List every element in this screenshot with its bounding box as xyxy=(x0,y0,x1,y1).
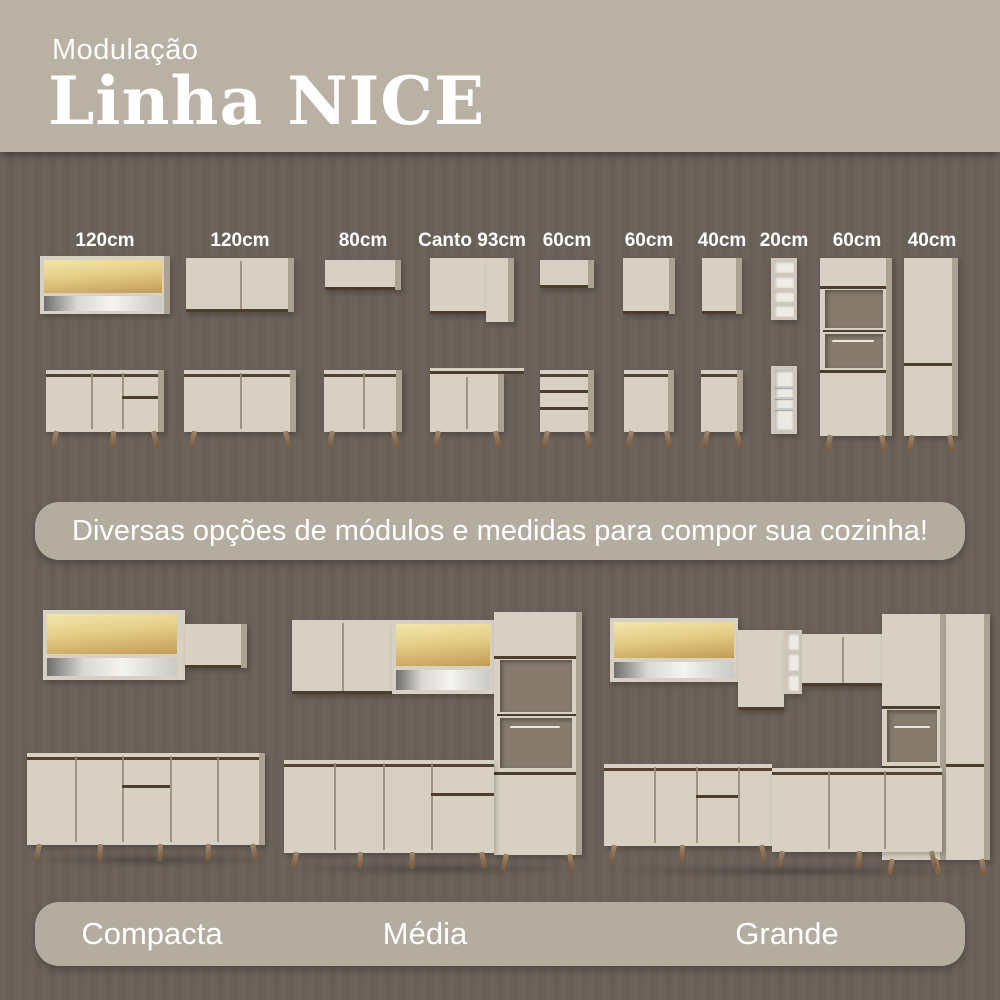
wall-cabinet-1-door xyxy=(185,624,247,668)
niche-cell xyxy=(787,633,799,650)
leg xyxy=(759,844,767,862)
cabinet-side xyxy=(669,258,675,314)
drawer-line xyxy=(431,793,494,796)
door-gap xyxy=(383,763,385,850)
niche-cell xyxy=(787,653,799,670)
open-shelf xyxy=(396,670,490,690)
cabinet-side xyxy=(290,370,296,432)
module-60cm-drawers: 60cm xyxy=(540,228,594,474)
tall-oven-tower xyxy=(820,258,892,436)
panel-line xyxy=(882,706,946,709)
leg xyxy=(542,430,550,448)
leg xyxy=(679,845,685,862)
leg xyxy=(205,844,211,861)
door-gap xyxy=(91,373,93,429)
glass-pane xyxy=(396,624,490,666)
wall-cabinet-glass xyxy=(43,610,185,680)
cabinet-side xyxy=(241,624,247,668)
cabinet-side xyxy=(668,370,674,432)
cabinet-side xyxy=(588,370,594,432)
module-size-label: 60cm xyxy=(543,230,592,252)
door-gap xyxy=(75,756,77,842)
cabinet-side xyxy=(952,258,958,436)
cabinet-side xyxy=(576,612,582,855)
bottom-line xyxy=(292,691,392,694)
drawer-line xyxy=(696,795,738,798)
niche-cell xyxy=(787,674,799,691)
leg xyxy=(151,430,159,448)
leg xyxy=(702,430,710,448)
kitchen-size-label-compacta: Compacta xyxy=(81,916,222,952)
open-shelf-niche xyxy=(771,258,797,320)
leg xyxy=(907,434,915,452)
module-size-label: 40cm xyxy=(908,230,957,252)
door-gap xyxy=(122,373,124,429)
niche-cell xyxy=(774,305,794,317)
open-shelf xyxy=(44,296,162,311)
cabinet-side xyxy=(508,258,514,322)
open-shelf-niche xyxy=(784,630,802,694)
wall-cabinet-glass xyxy=(610,618,738,682)
towel-rail xyxy=(894,726,930,728)
wall-cabinet-glass xyxy=(40,256,170,314)
tall-oven-tower xyxy=(494,612,582,855)
niche-cell xyxy=(774,291,794,303)
panel-line xyxy=(904,363,958,366)
message-banner-text: Diversas opções de módulos e medidas par… xyxy=(72,515,928,548)
countertop-line xyxy=(604,768,772,771)
wall-cabinet-1-door xyxy=(702,258,742,314)
countertop-line xyxy=(772,772,942,775)
cabinet-side xyxy=(288,258,294,312)
drawer-line xyxy=(540,390,594,393)
bottom-line xyxy=(186,309,294,312)
leg xyxy=(584,430,592,448)
kitchen-size-label-media: Média xyxy=(383,916,467,952)
leg xyxy=(879,434,887,452)
leg xyxy=(825,434,833,452)
bottom-line xyxy=(738,707,784,710)
floor-shadow xyxy=(282,863,587,875)
panel-line xyxy=(820,286,892,289)
floor-shadow xyxy=(25,854,275,866)
panel-line xyxy=(820,370,892,373)
cabinet-side xyxy=(395,260,401,290)
leg xyxy=(51,430,59,448)
bottom-line xyxy=(325,287,401,290)
door-gap xyxy=(696,767,698,843)
module-60cm-door: 60cm xyxy=(623,228,675,474)
leg xyxy=(947,434,955,452)
base-counter-left xyxy=(604,764,772,846)
module-size-label: 40cm xyxy=(698,230,747,252)
cabinet-side xyxy=(984,614,990,860)
wall-cabinet-glass xyxy=(392,620,494,694)
module-size-label: Canto 93cm xyxy=(418,230,526,252)
cabinet-side xyxy=(259,753,265,845)
towel-rail xyxy=(510,726,560,728)
leg xyxy=(626,430,634,448)
open-shelf xyxy=(47,658,177,676)
leg xyxy=(327,430,335,448)
countertop-line xyxy=(27,757,265,760)
module-size-label: 60cm xyxy=(833,230,882,252)
cabinet-side xyxy=(737,370,743,432)
drawer-line xyxy=(540,407,594,410)
niche-cell xyxy=(774,261,794,273)
base-cabinet-1-door xyxy=(624,370,674,432)
module-120cm-glass: 120cm xyxy=(40,228,170,474)
module-size-label: 120cm xyxy=(210,230,269,252)
leg xyxy=(391,430,399,448)
base-cabinet-3-drawers xyxy=(540,370,594,432)
leg xyxy=(856,851,862,868)
cabinet-side xyxy=(588,260,594,288)
leg xyxy=(734,430,742,448)
bottom-line xyxy=(430,311,486,314)
base-cabinet-1-door xyxy=(701,370,743,432)
cabinet-side xyxy=(158,370,164,432)
wire-rack xyxy=(775,408,793,410)
leg xyxy=(664,430,672,448)
cabinet-side xyxy=(498,374,504,432)
bottom-line xyxy=(540,285,594,288)
open-niche xyxy=(887,710,937,762)
size-labels-banner: Compacta Média Grande xyxy=(35,902,965,966)
base-counter xyxy=(284,760,494,853)
leg xyxy=(283,430,291,448)
base-counter xyxy=(27,753,265,845)
wall-cabinet-2-doors xyxy=(292,620,392,694)
tall-cabinet-2-doors xyxy=(904,258,958,436)
module-20cm: 20cm xyxy=(771,228,797,474)
leg xyxy=(110,431,116,448)
glass-pane xyxy=(614,622,734,658)
base-cabinet-2-doors xyxy=(184,370,296,432)
door-gap xyxy=(431,763,433,850)
message-banner: Diversas opções de módulos e medidas par… xyxy=(35,502,965,560)
open-niche xyxy=(500,660,572,712)
catalog-page: { "header": { "subtitle": "Modulação", "… xyxy=(0,0,1000,1000)
wall-cabinet-1-door xyxy=(623,258,675,314)
door-gap xyxy=(334,763,336,850)
open-shelf xyxy=(614,662,734,678)
door-gap xyxy=(170,756,172,842)
page-title: Linha NICE xyxy=(48,62,485,140)
corner-base-cabinet xyxy=(430,374,504,432)
shelf-line xyxy=(823,330,889,332)
door-gap xyxy=(466,377,468,429)
module-120cm-doors: 120cm xyxy=(184,228,296,474)
door-gap xyxy=(363,373,365,429)
bottle-rack-cabinet xyxy=(771,366,797,434)
door-gap xyxy=(654,767,656,843)
countertop-line xyxy=(46,374,164,377)
niche-cell xyxy=(774,276,794,288)
countertop-line xyxy=(624,374,674,377)
module-40cm-tall: 40cm xyxy=(904,228,960,474)
glass-pane xyxy=(47,614,177,654)
cabinet-side xyxy=(736,258,742,314)
cabinet-side xyxy=(886,258,892,436)
countertop-line xyxy=(540,374,594,377)
door-gap xyxy=(828,771,830,849)
kitchen-size-label-grande: Grande xyxy=(735,916,838,952)
door-gap xyxy=(342,623,344,691)
panel-line xyxy=(494,772,582,775)
door-gap xyxy=(738,767,740,843)
wall-cabinet-2-doors xyxy=(802,634,882,686)
base-cabinet-2-doors xyxy=(324,370,402,432)
door-gap xyxy=(122,756,124,842)
cabinet-side xyxy=(396,370,402,432)
cabinet-side xyxy=(164,256,170,314)
wall-cabinet-2-doors xyxy=(186,258,294,312)
corner-wall-cabinet xyxy=(738,630,784,710)
corner-wall-cabinet-door xyxy=(430,258,486,314)
kitchen-grande-image xyxy=(602,598,997,903)
module-size-label: 60cm xyxy=(625,230,674,252)
leg xyxy=(433,430,441,448)
glass-pane xyxy=(44,260,162,293)
corner-wall-cabinet-return xyxy=(486,258,514,322)
page-header: Modulação Linha NICE xyxy=(0,0,1000,152)
bottom-line xyxy=(185,665,247,668)
door-gap xyxy=(240,261,242,309)
shelf-line xyxy=(497,714,579,716)
module-size-label: 80cm xyxy=(339,230,388,252)
base-counter-right xyxy=(772,768,942,852)
module-size-label: 120cm xyxy=(75,230,134,252)
module-60cm-tower: 60cm xyxy=(820,228,894,474)
countertop-line xyxy=(284,764,494,767)
panel-line xyxy=(494,656,582,659)
wall-cabinet-flip-door xyxy=(325,260,401,290)
leg xyxy=(493,430,501,448)
leg xyxy=(409,852,415,869)
leg xyxy=(609,844,617,862)
door-gap xyxy=(240,373,242,429)
drawer-line xyxy=(122,785,170,788)
towel-rail xyxy=(832,340,874,342)
module-40cm: 40cm xyxy=(701,228,743,474)
leg xyxy=(157,844,163,861)
leg xyxy=(189,430,197,448)
wall-cabinet-flip-door xyxy=(540,260,594,288)
module-size-label: 20cm xyxy=(760,230,809,252)
leg xyxy=(357,852,363,869)
module-80cm: 80cm xyxy=(324,228,402,474)
bottle-rack-interior xyxy=(775,370,793,430)
leg xyxy=(979,858,987,876)
bottom-line xyxy=(623,311,675,314)
wire-rack xyxy=(775,397,793,399)
open-niche xyxy=(825,290,883,328)
kitchen-media-image xyxy=(282,598,592,903)
base-cabinet-3-doors-drawer xyxy=(46,370,164,432)
tall-cabinet-2-doors xyxy=(946,614,990,860)
kitchen-compacta-image xyxy=(25,598,280,898)
door-gap xyxy=(217,756,219,842)
door-gap xyxy=(842,637,844,683)
door-gap xyxy=(884,771,886,849)
module-canto-93cm: Canto 93cm xyxy=(430,228,514,474)
bottom-line xyxy=(802,683,882,686)
